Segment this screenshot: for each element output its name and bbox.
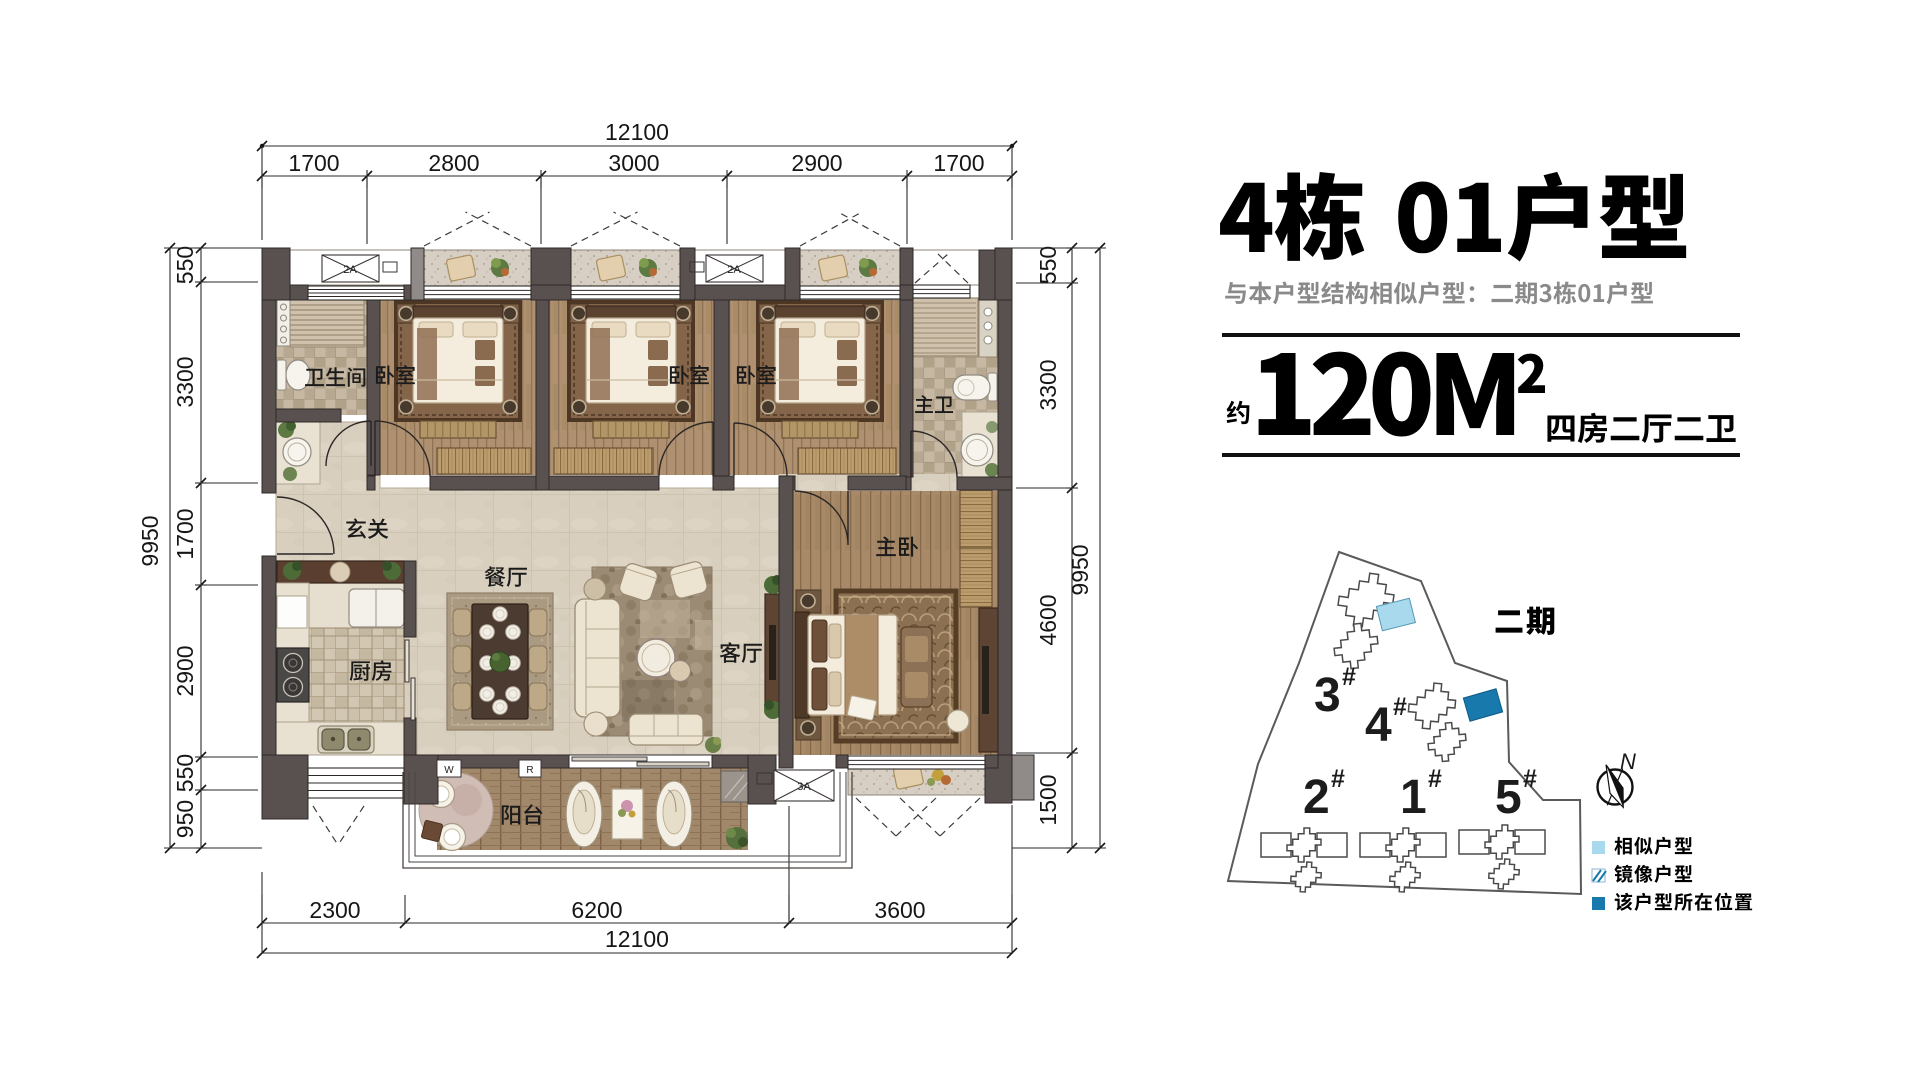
- svg-text:#: #: [1342, 663, 1356, 691]
- svg-text:2900: 2900: [172, 645, 198, 696]
- svg-text:4: 4: [1365, 699, 1392, 752]
- svg-text:9950: 9950: [1067, 544, 1093, 595]
- svg-text:3: 3: [1314, 669, 1341, 722]
- svg-text:W: W: [444, 765, 454, 776]
- svg-text:950: 950: [172, 800, 198, 838]
- svg-text:12100: 12100: [605, 119, 669, 145]
- svg-text:3000: 3000: [608, 150, 659, 176]
- svg-text:550: 550: [1035, 246, 1061, 284]
- svg-text:3A: 3A: [797, 781, 811, 793]
- svg-text:R: R: [526, 765, 533, 776]
- svg-text:2300: 2300: [309, 897, 360, 923]
- svg-text:2900: 2900: [791, 150, 842, 176]
- svg-text:1700: 1700: [172, 508, 198, 559]
- svg-text:550: 550: [172, 754, 198, 792]
- svg-text:3600: 3600: [874, 897, 925, 923]
- svg-text:4600: 4600: [1035, 594, 1061, 645]
- svg-text:2A: 2A: [727, 264, 741, 276]
- svg-text:N: N: [1620, 749, 1636, 774]
- svg-text:5: 5: [1495, 771, 1522, 824]
- svg-text:1: 1: [1400, 771, 1427, 824]
- svg-text:3300: 3300: [1035, 359, 1061, 410]
- svg-text:#: #: [1428, 765, 1442, 793]
- svg-text:12100: 12100: [605, 926, 669, 952]
- svg-text:#: #: [1331, 765, 1345, 793]
- svg-text:9950: 9950: [137, 515, 163, 566]
- svg-text:1700: 1700: [288, 150, 339, 176]
- svg-text:3300: 3300: [172, 356, 198, 407]
- svg-text:2: 2: [1303, 771, 1330, 824]
- svg-text:#: #: [1523, 765, 1537, 793]
- svg-text:6200: 6200: [571, 897, 622, 923]
- svg-text:#: #: [1393, 693, 1407, 721]
- svg-text:550: 550: [172, 246, 198, 284]
- svg-text:2A: 2A: [343, 264, 357, 276]
- svg-text:1500: 1500: [1035, 774, 1061, 825]
- svg-text:2800: 2800: [428, 150, 479, 176]
- svg-text:1700: 1700: [933, 150, 984, 176]
